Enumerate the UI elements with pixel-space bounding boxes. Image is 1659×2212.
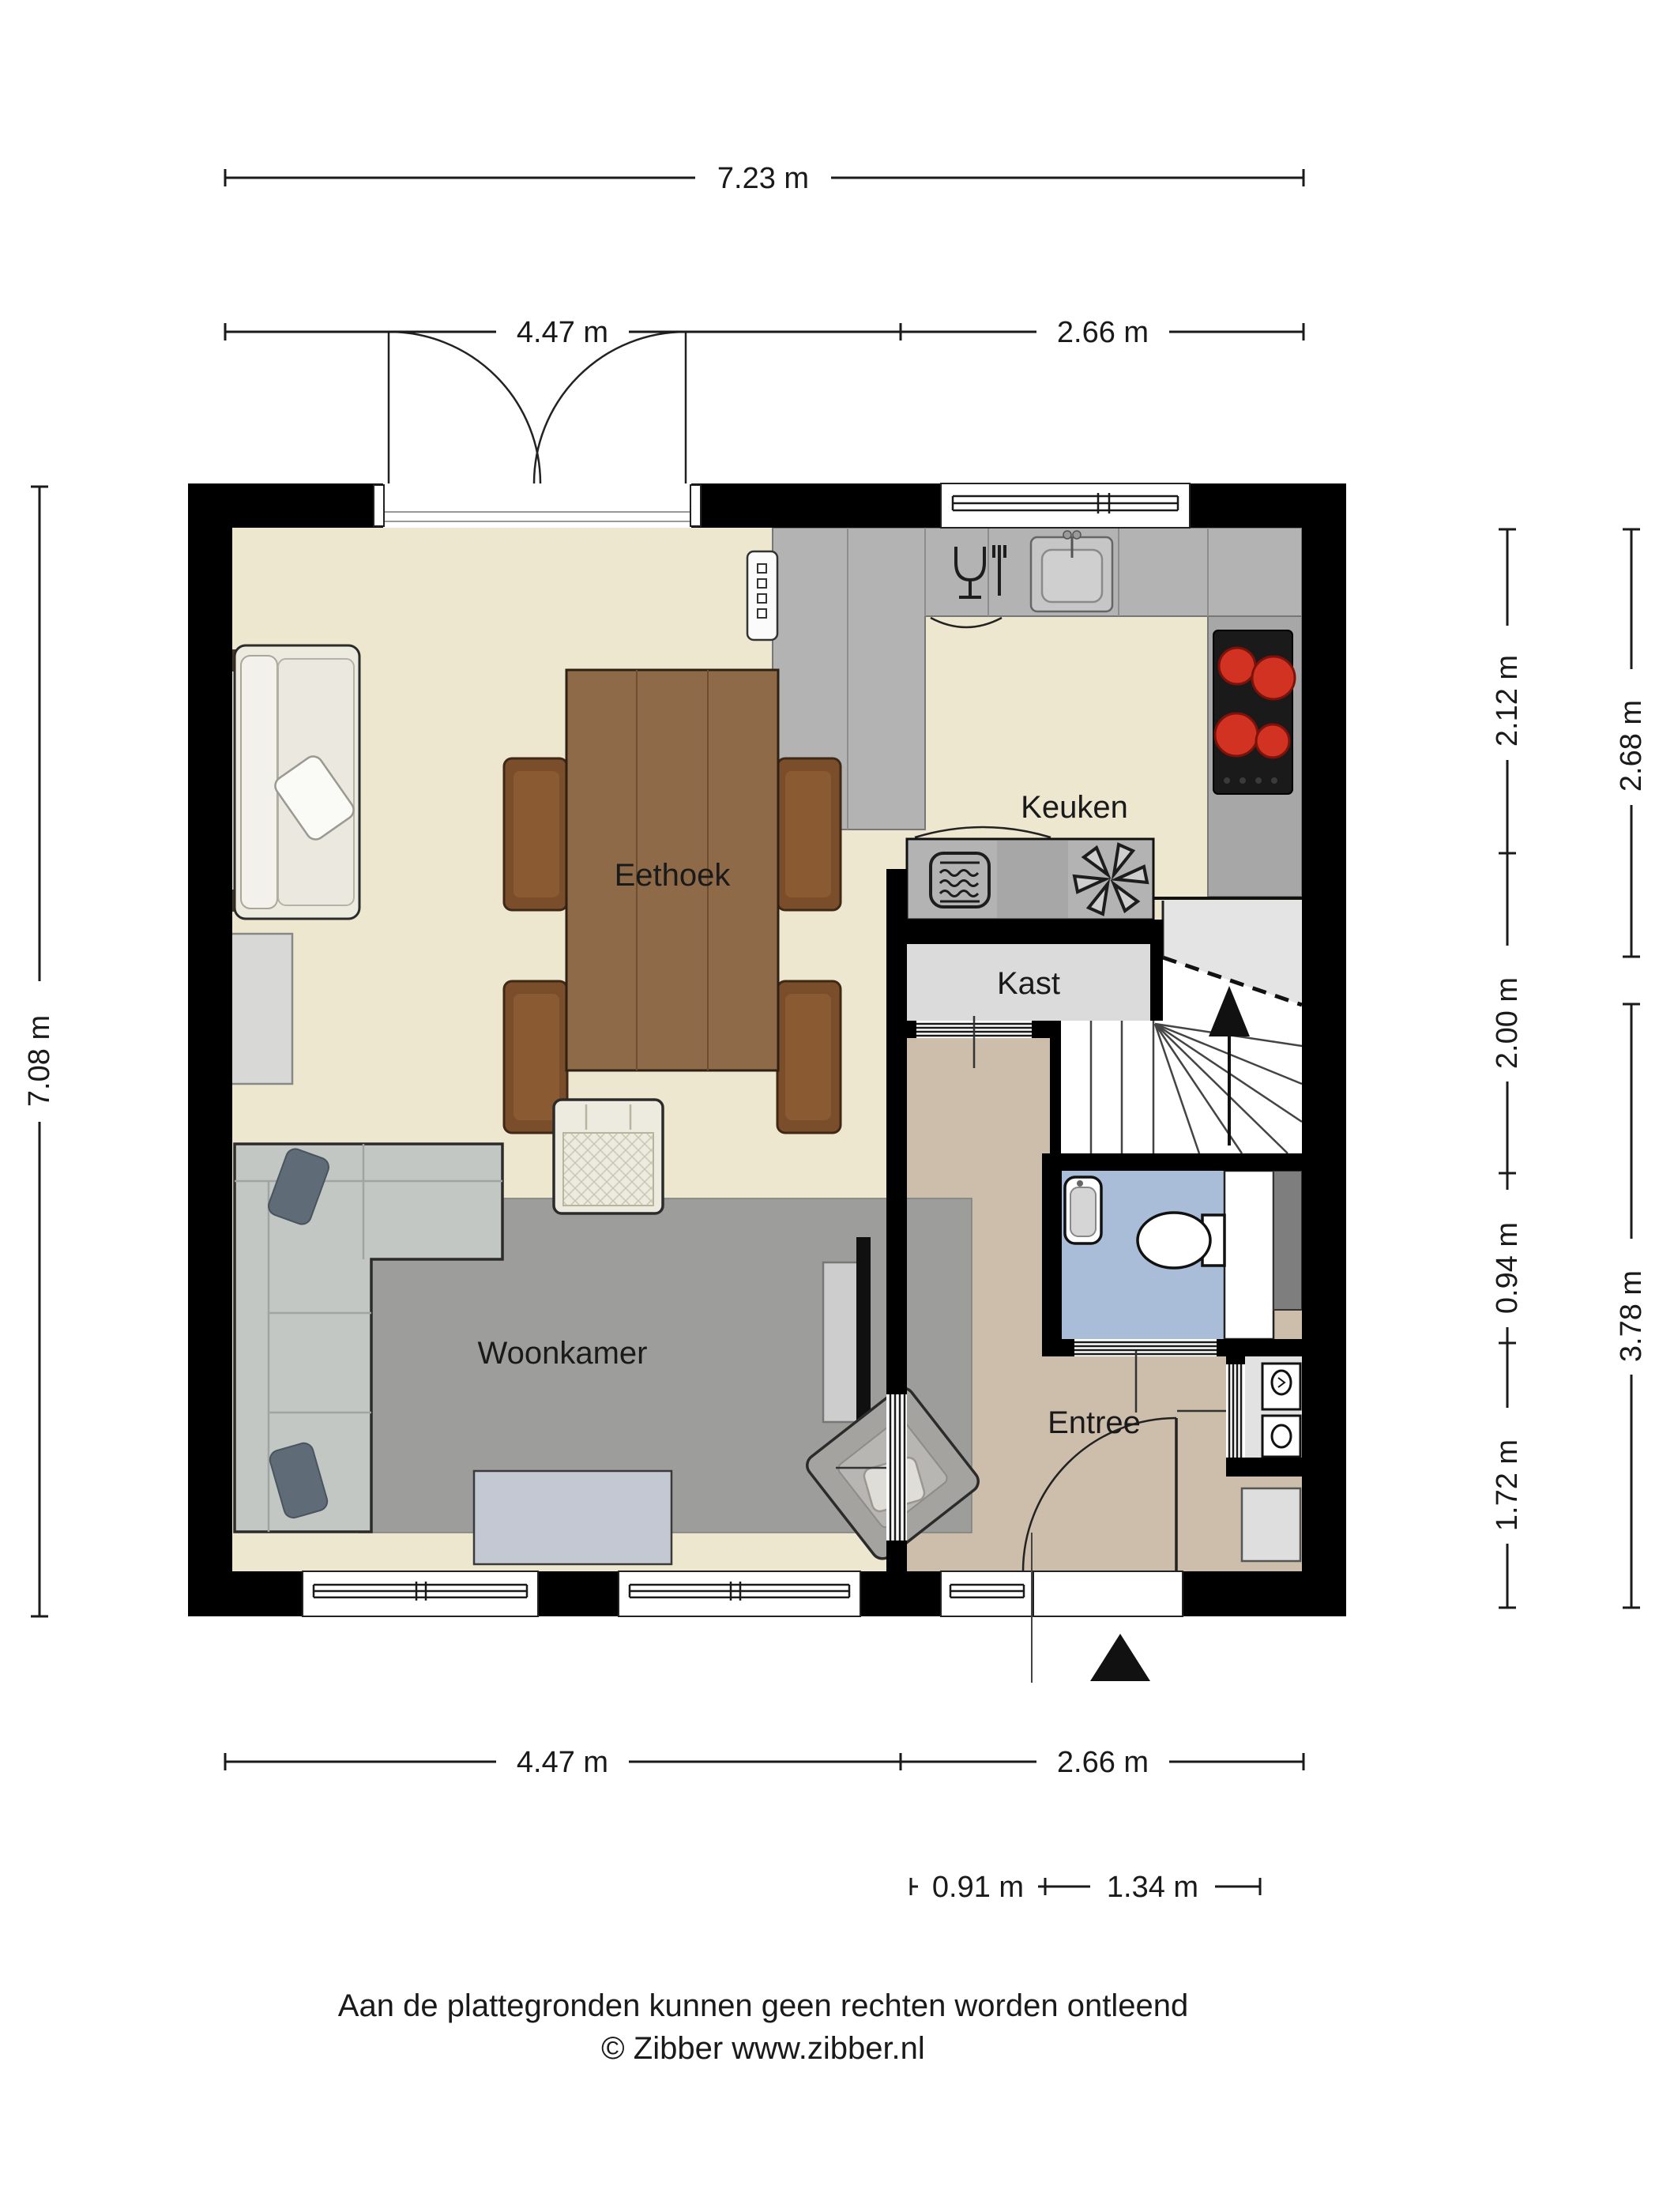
toilet-icon bbox=[1138, 1213, 1224, 1268]
svg-text:1.72 m: 1.72 m bbox=[1491, 1439, 1524, 1531]
floorplan-page: Keuken Eethoek Kast Woonkamer Entree 7.2… bbox=[0, 0, 1659, 2212]
room-label-keuken: Keuken bbox=[1021, 790, 1128, 825]
washbasin-icon bbox=[1065, 1177, 1101, 1243]
double-door bbox=[374, 332, 701, 528]
svg-text:3.78 m: 3.78 m bbox=[1615, 1270, 1648, 1362]
svg-text:4.47 m: 4.47 m bbox=[517, 1746, 608, 1779]
lounge-chair bbox=[224, 645, 359, 919]
dimension-top-left: 4.47 m bbox=[225, 316, 901, 349]
electric-meter-icon bbox=[1262, 1364, 1300, 1409]
room-label-entree: Entree bbox=[1048, 1405, 1141, 1440]
dimension-bottom-left: 4.47 m bbox=[225, 1746, 901, 1779]
electric-meter-icon bbox=[1262, 1416, 1300, 1457]
dimension-top-right: 2.66 m bbox=[901, 316, 1303, 349]
dimension-top-total: 7.23 m bbox=[225, 162, 1303, 195]
svg-text:2.66 m: 2.66 m bbox=[1057, 1746, 1149, 1779]
room-label-eethoek: Eethoek bbox=[615, 858, 732, 893]
room-label-kast: Kast bbox=[997, 966, 1060, 1001]
svg-text:0.91 m: 0.91 m bbox=[932, 1871, 1024, 1904]
dimension-right-outer: 2.68 m 3.78 m bbox=[1615, 529, 1648, 1608]
svg-text:2.66 m: 2.66 m bbox=[1057, 316, 1149, 349]
dining-chair bbox=[504, 758, 567, 910]
svg-text:7.08 m: 7.08 m bbox=[23, 1015, 56, 1107]
dimension-left-total: 7.08 m bbox=[23, 487, 56, 1616]
floorplan-canvas: Keuken Eethoek Kast Woonkamer Entree 7.2… bbox=[0, 0, 1659, 2212]
footer-disclaimer: Aan de plattegronden kunnen geen rechten… bbox=[338, 1988, 1188, 2023]
room-label-woonkamer: Woonkamer bbox=[478, 1336, 648, 1371]
svg-text:2.00 m: 2.00 m bbox=[1491, 977, 1524, 1069]
footer-copyright: © Zibber www.zibber.nl bbox=[601, 2031, 925, 2066]
radiator-icon bbox=[747, 551, 777, 640]
dimension-right-inner: 2.12 m 2.00 m 0.94 m 1.72 m bbox=[1491, 529, 1524, 1608]
svg-text:1.34 m: 1.34 m bbox=[1107, 1871, 1198, 1904]
dimension-bottom-right: 2.66 m bbox=[901, 1746, 1303, 1779]
dining-chair bbox=[777, 981, 841, 1133]
svg-text:4.47 m: 4.47 m bbox=[517, 316, 608, 349]
svg-text:2.68 m: 2.68 m bbox=[1615, 700, 1648, 792]
livingroom-window bbox=[303, 1571, 538, 1616]
dining-chair bbox=[777, 758, 841, 910]
svg-text:2.12 m: 2.12 m bbox=[1491, 655, 1524, 747]
kitchen-window bbox=[941, 483, 1190, 528]
entrance-marker-icon bbox=[1090, 1634, 1150, 1681]
svg-text:0.94 m: 0.94 m bbox=[1491, 1222, 1524, 1314]
meter-cupboard bbox=[1245, 1356, 1302, 1458]
doormat bbox=[1242, 1488, 1300, 1561]
entree-sidelight-window bbox=[941, 1571, 1033, 1616]
side-cabinet bbox=[231, 934, 292, 1084]
coffee-table bbox=[474, 1471, 671, 1564]
livingroom-window bbox=[619, 1571, 860, 1616]
shaft bbox=[1273, 1171, 1302, 1310]
dimension-entry-small: 0.91 m 1.34 m bbox=[911, 1871, 1260, 1904]
sink-icon bbox=[1031, 531, 1112, 611]
svg-text:7.23 m: 7.23 m bbox=[717, 162, 809, 195]
patterned-armchair bbox=[554, 1100, 663, 1213]
cooktop-icon bbox=[1213, 630, 1295, 794]
